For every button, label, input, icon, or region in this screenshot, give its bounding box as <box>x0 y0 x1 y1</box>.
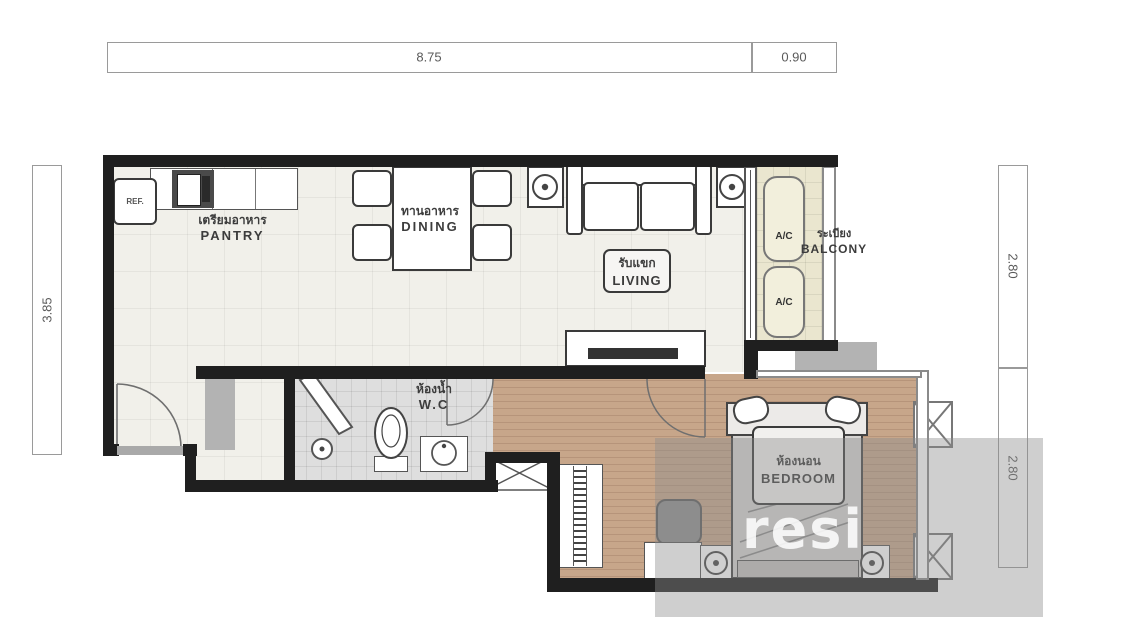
balcony-label-thai: ระเบียง <box>788 228 880 242</box>
sofa-armrest <box>695 164 712 235</box>
living-label-thai: รับแขก <box>605 254 669 273</box>
living-label-en: LIVING <box>605 273 669 288</box>
entrance-door-sill <box>117 446 185 455</box>
floor-plan: REF. A/C A/C <box>0 0 1125 633</box>
refrigerator: REF. <box>113 178 157 225</box>
refrigerator-label: REF. <box>126 197 143 206</box>
wall <box>744 340 838 351</box>
balcony-label-en: BALCONY <box>788 242 880 257</box>
wall <box>284 370 295 484</box>
wall <box>103 155 838 167</box>
dining-label-en: DINING <box>365 219 495 235</box>
ac-unit: A/C <box>763 266 805 338</box>
dining-chair <box>352 170 392 207</box>
pantry-label: เตรียมอาหาร PANTRY <box>160 213 305 244</box>
dining-label-thai: ทานอาหาร <box>365 204 495 219</box>
wall <box>547 452 560 592</box>
sofa-cushion <box>640 182 695 231</box>
sink-basin <box>177 174 201 206</box>
balcony-label: ระเบียง BALCONY <box>788 228 880 257</box>
tv <box>588 348 678 359</box>
wall <box>485 452 496 492</box>
counter-divider <box>255 169 256 209</box>
wc-label: ห้องน้ำ W.C <box>392 382 476 413</box>
wardrobe-shelves <box>573 466 587 566</box>
bathroom-sink-counter <box>420 436 468 472</box>
wall <box>185 480 498 492</box>
dimension-top-right: 0.90 <box>781 50 806 65</box>
wc-partition <box>205 379 235 450</box>
sink-drainer <box>202 176 210 202</box>
dining-chair <box>472 170 512 207</box>
ac-unit-label: A/C <box>775 297 792 308</box>
living-label: รับแขก LIVING <box>603 249 671 293</box>
dimension-bar-top <box>107 42 837 73</box>
toilet-tank <box>374 456 408 472</box>
pantry-label-thai: เตรียมอาหาร <box>160 213 305 228</box>
wc-label-en: W.C <box>392 397 476 413</box>
wall <box>196 366 705 379</box>
bedroom-exterior-wall <box>756 370 922 378</box>
pantry-label-en: PANTRY <box>160 228 305 244</box>
sofa-armrest <box>566 164 583 235</box>
dimension-left: 3.85 <box>40 297 55 322</box>
sofa-cushion <box>583 182 639 231</box>
wall <box>103 155 114 456</box>
dimension-right-upper: 2.80 <box>1006 253 1021 278</box>
dining-label: ทานอาหาร DINING <box>365 204 495 235</box>
watermark-text: resi <box>742 498 864 561</box>
wc-label-thai: ห้องน้ำ <box>392 382 476 397</box>
balcony-sliding-door-track <box>750 170 751 338</box>
dimension-bar-top-divider <box>751 43 753 72</box>
dimension-top-main: 8.75 <box>416 50 441 65</box>
side-table <box>527 166 564 208</box>
